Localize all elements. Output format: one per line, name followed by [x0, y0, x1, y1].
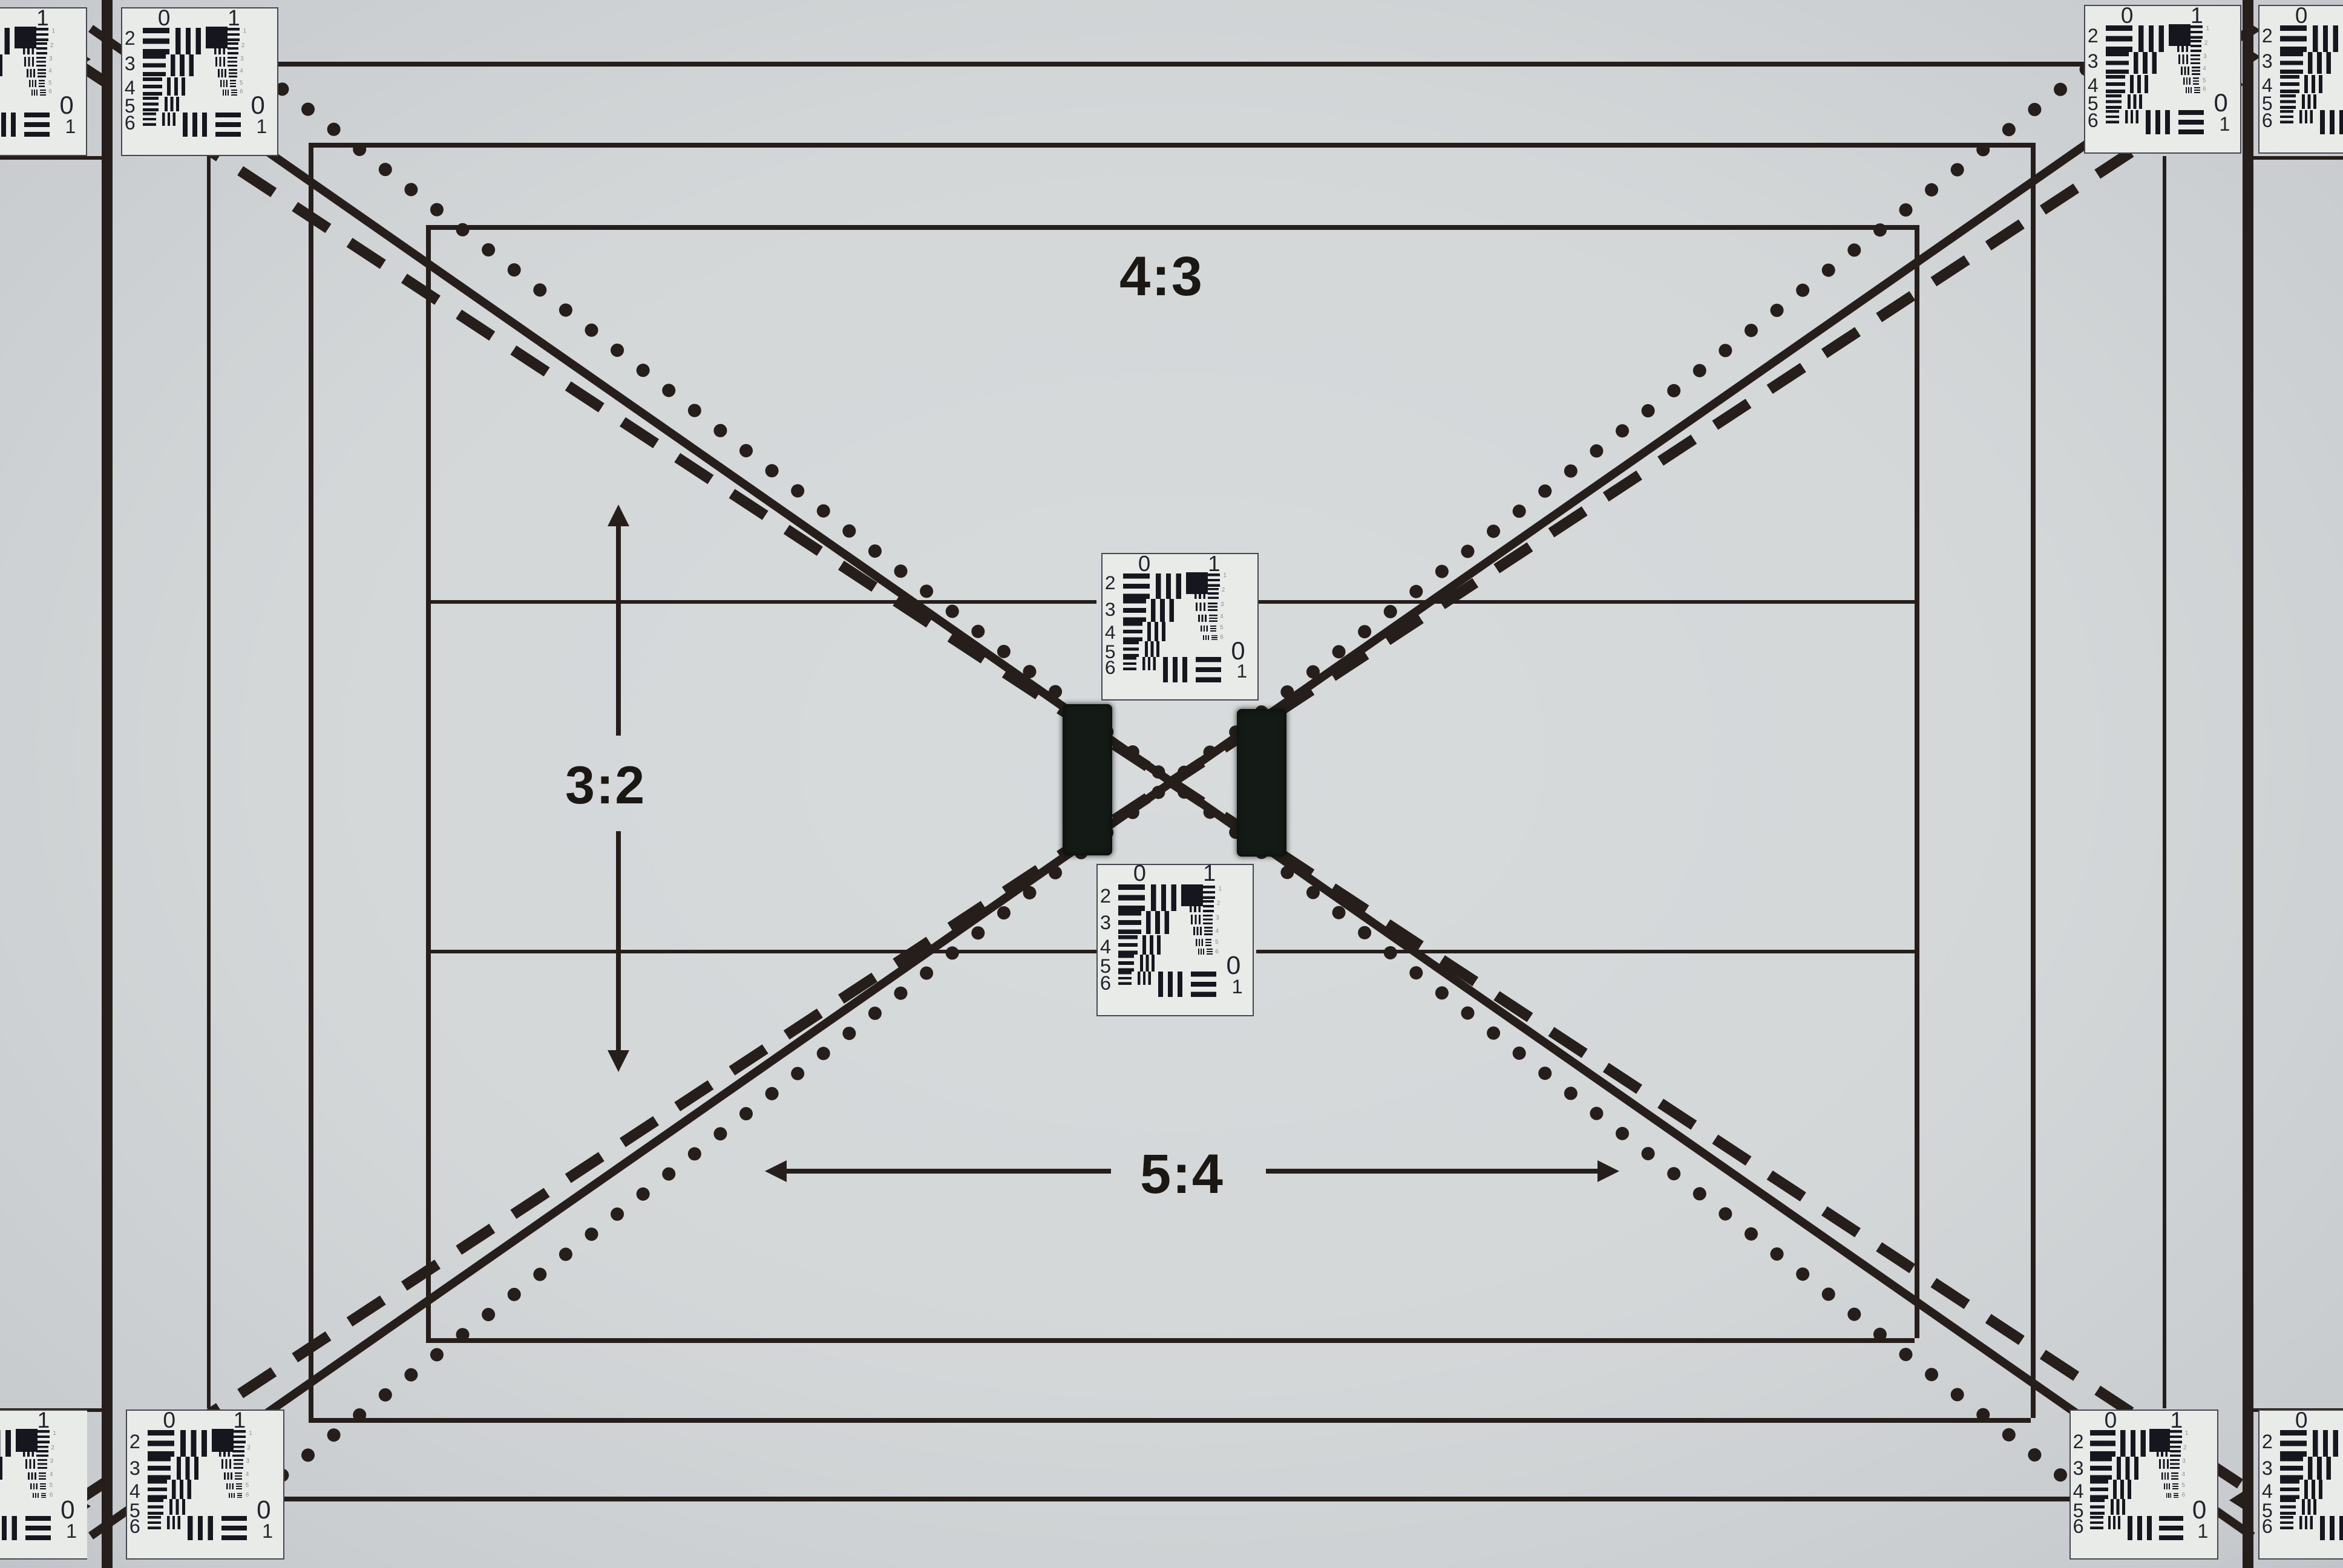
hbar-pattern [221, 1515, 246, 1540]
diagonal-dot [1432, 983, 1451, 1002]
frame-inner-left [426, 225, 430, 1338]
diagonal-dot [1896, 1345, 1915, 1364]
diagonal-dot [660, 381, 678, 399]
group-1-label: 1 [228, 7, 240, 30]
row-number: 3 [1100, 914, 1111, 934]
vbar-pattern [180, 1430, 207, 1457]
arrow-down-icon [608, 1050, 629, 1072]
aspect-label-3-2: 3:2 [565, 756, 646, 817]
usaf-target: 012345612345601 [2069, 1410, 2218, 1560]
frame-outer-bottom [140, 1497, 2204, 1501]
hbar-pattern [230, 80, 237, 87]
row-number: 6 [2088, 112, 2099, 131]
mini-index: 2 [1217, 902, 1221, 908]
vbar-pattern [31, 90, 37, 95]
hbar-pattern [227, 28, 240, 42]
usaf-target: 012345612345601 [1096, 864, 1254, 1016]
vbar-pattern [218, 69, 226, 77]
diagonal-dot [1742, 321, 1761, 339]
vbar-pattern [2127, 94, 2143, 109]
hbar-pattern [36, 28, 49, 42]
hbar-pattern [1119, 884, 1145, 912]
hbar-pattern [1203, 915, 1213, 924]
mini-index: 4 [2203, 68, 2206, 74]
vbar-pattern [221, 1460, 231, 1469]
hbar-pattern [2194, 87, 2200, 93]
diagonal-dot [479, 1305, 498, 1324]
mini-index: 2 [1222, 590, 1225, 596]
hbar-pattern [227, 43, 238, 54]
mini-index: 4 [50, 1474, 53, 1480]
row-number: 4 [125, 79, 136, 99]
diagonal-dot [1922, 180, 1941, 198]
diagonal-dot [711, 420, 730, 439]
diagonal-dot [814, 501, 833, 520]
corner-group-1: 1 [2219, 116, 2230, 136]
hbar-pattern [1208, 602, 1217, 612]
hbar-pattern [2191, 54, 2200, 64]
vbar-pattern [2177, 41, 2187, 51]
hbar-pattern [25, 113, 50, 137]
mini-index: 6 [246, 1494, 249, 1500]
vbar-pattern [172, 1480, 191, 1499]
vbar-pattern [229, 1492, 235, 1498]
vbar-pattern [1155, 573, 1182, 599]
usaf-target-box: 012345612345601 [121, 7, 278, 156]
hbar-pattern [1191, 972, 1216, 997]
mini-index: 1 [53, 1432, 56, 1438]
diagonal-dot [505, 1284, 523, 1303]
corner-group-0: 0 [1231, 640, 1245, 665]
diagonal-dot [2051, 79, 2070, 98]
hbar-pattern [228, 57, 237, 67]
frame-inner-right [1915, 225, 1919, 1338]
frame-mid-right [2031, 143, 2035, 1418]
vbar-pattern [2312, 25, 2339, 51]
hbar-pattern [216, 113, 241, 137]
hbar-pattern [1204, 927, 1212, 936]
corner-group-0: 0 [61, 1498, 74, 1523]
usaf-target-partial: 012345612345601 [0, 1410, 87, 1560]
vbar-pattern [175, 27, 202, 54]
diagonal-dot [1510, 501, 1529, 520]
vbar-pattern [1187, 885, 1200, 898]
usaf-target-box: 012345612345601 [2258, 1410, 2343, 1560]
diagonal-dot [2025, 1445, 2044, 1464]
vbar-pattern [2184, 78, 2191, 85]
diagonal-dot [1794, 280, 1812, 299]
corner-group-1: 1 [65, 119, 76, 138]
diagonal-dot [1768, 301, 1786, 319]
vbar-pattern [1142, 657, 1155, 670]
row-number: 2 [1105, 575, 1116, 595]
diagonal-dot [1665, 1164, 1683, 1183]
row-number: 4 [2088, 77, 2099, 96]
hbar-pattern [1207, 949, 1212, 955]
mini-index: 1 [1219, 887, 1222, 893]
hbar-pattern [2281, 1499, 2296, 1515]
group-0-label: 0 [2105, 1410, 2117, 1432]
diagonal-dot [943, 943, 962, 962]
diagonal-dot [1639, 1144, 1657, 1163]
usaf-target-partial: 012345612345601 [2258, 1410, 2343, 1560]
vbar-pattern [33, 1492, 39, 1498]
vbar-pattern [167, 77, 186, 96]
vbar-pattern [1147, 912, 1169, 935]
mini-index: 4 [246, 1474, 249, 1480]
diagonal-dot [1381, 943, 1400, 962]
row-number: 3 [129, 1459, 140, 1478]
diagonal-dot [737, 441, 756, 460]
hbar-pattern [143, 113, 157, 126]
corner-group-1: 1 [256, 119, 267, 138]
hbar-pattern [2193, 78, 2200, 85]
row-number: 4 [1105, 624, 1116, 644]
hbar-pattern [235, 1483, 242, 1490]
vbar-pattern [0, 54, 2, 76]
diagonal-dot [891, 983, 910, 1002]
vbar-pattern [1191, 915, 1201, 924]
hbar-pattern [1124, 657, 1137, 670]
hbar-pattern [1207, 573, 1221, 587]
hbar-pattern [1119, 912, 1141, 935]
row-number: 6 [1105, 659, 1116, 679]
usaf-target: 012345612345601 [2084, 5, 2241, 154]
diagonal-dot [1948, 160, 1967, 178]
diagonal-dot [376, 160, 395, 178]
group-1-label: 1 [2171, 1410, 2183, 1432]
velcro-tab-right [1237, 709, 1286, 857]
hbar-pattern [232, 1431, 246, 1444]
diagonal-dot [1794, 1264, 1812, 1283]
diagonal-dot [814, 1044, 833, 1062]
frame-mid-bottom [309, 1418, 2031, 1422]
vbar-pattern [2130, 75, 2149, 94]
arrow-up-icon [608, 505, 629, 526]
diagonal-dot [1510, 1044, 1529, 1062]
hbar-pattern [2159, 1515, 2183, 1540]
test-chart-canvas: 4:3 3:2 5:4 0123456123456010123456123456… [0, 0, 2343, 1568]
vbar-pattern [22, 43, 33, 54]
diagonal-dot [891, 561, 910, 580]
hbar-pattern [2106, 25, 2133, 51]
diagonal-dot [299, 99, 318, 118]
hbar-pattern [41, 1492, 47, 1498]
vbar-pattern [1196, 939, 1203, 946]
vbar-pattern [1201, 626, 1208, 632]
diagonal-dot [634, 361, 652, 379]
mini-index: 3 [240, 58, 243, 64]
horizontal-arrow-shaft-right [1266, 1169, 1600, 1174]
vbar-pattern [2309, 51, 2331, 74]
group-1-label: 1 [1203, 864, 1216, 886]
hbar-pattern [39, 1483, 46, 1490]
vbar-pattern [164, 96, 180, 112]
diagonal-dot [1561, 461, 1580, 480]
group-0-label: 0 [1138, 553, 1150, 575]
hbar-pattern [2091, 1515, 2103, 1529]
vbar-pattern [2159, 1460, 2168, 1469]
vbar-pattern [0, 27, 10, 54]
vbar-pattern [2155, 1431, 2168, 1444]
frame-mid-left [309, 143, 313, 1418]
diagonal-dot [866, 1004, 885, 1022]
hbar-pattern [1196, 657, 1221, 682]
corner-group-0: 0 [59, 95, 73, 120]
hbar-pattern [148, 1499, 164, 1515]
hbar-pattern [2169, 1431, 2182, 1444]
mini-index: 3 [246, 1461, 250, 1467]
vbar-pattern [20, 28, 33, 42]
usaf-target-box: 012345612345601 [1096, 864, 1254, 1016]
diagonal-dot [634, 1184, 652, 1203]
frame-outer-top [140, 62, 2204, 66]
hbar-pattern [1124, 599, 1146, 621]
hbar-pattern [2170, 1445, 2180, 1457]
usaf-target-box: 012345612345601 [126, 1410, 284, 1560]
vbar-pattern [27, 69, 35, 77]
vbar-pattern [1194, 588, 1205, 599]
hbar-pattern [1209, 615, 1217, 622]
hbar-pattern [1211, 635, 1217, 640]
vbar-pattern [2128, 1515, 2151, 1540]
mini-index: 6 [1215, 950, 1219, 956]
margin-line-top-right [2253, 156, 2343, 159]
group-1-label: 1 [1208, 553, 1220, 575]
group-1-label: 1 [37, 1410, 50, 1432]
vbar-pattern [167, 1515, 180, 1529]
usaf-target-box: 012345612345601 [2069, 1410, 2218, 1560]
vbar-pattern [23, 1445, 34, 1457]
row-number: 2 [1100, 887, 1111, 907]
hbar-pattern [143, 96, 159, 112]
hbar-pattern [2091, 1457, 2112, 1480]
mini-index: 6 [240, 91, 243, 97]
diagonal-dot [1613, 1123, 1632, 1142]
diagonal-dot [1819, 1284, 1838, 1303]
row-number: 3 [2088, 54, 2099, 73]
corner-group-1: 1 [2197, 1521, 2208, 1541]
hbar-pattern [38, 1472, 46, 1480]
mini-index: 1 [1224, 575, 1227, 581]
vbar-pattern [1163, 657, 1188, 682]
diagonal-dot [531, 1264, 549, 1283]
hbar-pattern [237, 1492, 243, 1498]
row-number: 3 [2262, 54, 2273, 73]
diagonal-dot [324, 119, 343, 138]
usaf-target-box: 012345612345601 [2258, 5, 2343, 154]
hbar-pattern [2091, 1430, 2115, 1457]
diagonal-dot [1665, 381, 1683, 399]
hbar-pattern [2281, 94, 2296, 109]
arrow-left-icon [765, 1160, 787, 1182]
diagonal-dot [505, 260, 523, 279]
hbar-pattern [2091, 1480, 2108, 1499]
vbar-pattern [1152, 599, 1174, 621]
diagonal-dot [428, 1345, 447, 1364]
group-1-label: 1 [233, 1410, 246, 1432]
diagonal-dot [1768, 1244, 1786, 1263]
diagonal-dot [556, 300, 575, 319]
usaf-target: 012345612345601 [126, 1410, 284, 1560]
hbar-pattern [1119, 955, 1135, 971]
group-0-label: 0 [2295, 1410, 2308, 1432]
row-number: 3 [125, 56, 136, 76]
diagonal-dot [762, 461, 781, 480]
diagonal-dot [1484, 521, 1503, 540]
diagonal-dot [402, 180, 421, 198]
corner-group-0: 0 [1226, 953, 1240, 979]
mini-index: 5 [50, 1485, 53, 1491]
hbar-pattern [148, 1457, 171, 1480]
diagonal-dot [1149, 782, 1168, 801]
vbar-pattern [162, 113, 175, 126]
vertical-arrow-shaft-upper [616, 523, 621, 736]
corner-group-1: 1 [1236, 663, 1247, 682]
hbar-pattern [1119, 972, 1132, 985]
vbar-pattern [2320, 110, 2343, 135]
row-number: 6 [2073, 1518, 2084, 1537]
vbar-pattern [2164, 1483, 2171, 1490]
horizontal-arrow-shaft-left [783, 1169, 1111, 1174]
vbar-pattern [169, 1499, 185, 1515]
row-number: 4 [2262, 1482, 2273, 1501]
mini-index: 2 [2204, 42, 2207, 48]
row-number: 4 [2262, 77, 2273, 96]
hbar-pattern [37, 1445, 48, 1457]
vbar-pattern [2309, 1457, 2331, 1480]
hbar-pattern [2281, 1515, 2294, 1529]
vbar-pattern [211, 28, 224, 42]
mini-index: 2 [2183, 1447, 2187, 1453]
diagonal-dot [866, 541, 885, 560]
hbar-pattern [36, 1431, 50, 1444]
diagonal-dot [608, 1204, 627, 1223]
vbar-pattern [2174, 26, 2187, 39]
margin-line-top-left [0, 156, 102, 159]
diagonal-dot [582, 1224, 601, 1243]
hbar-pattern [36, 43, 47, 54]
hbar-pattern [2281, 1430, 2307, 1457]
vbar-pattern [2117, 1457, 2138, 1480]
diagonal-dot [1716, 341, 1735, 359]
hbar-pattern [1202, 900, 1213, 912]
vbar-pattern [28, 1472, 36, 1480]
hbar-pattern [2281, 1480, 2299, 1499]
velcro-tab-left [1063, 704, 1112, 855]
vbar-pattern [30, 80, 36, 87]
vbar-pattern [0, 1457, 3, 1480]
vbar-pattern [1203, 635, 1208, 640]
mini-index: 3 [1221, 604, 1224, 610]
diagonal-dot [762, 1083, 781, 1102]
hbar-pattern [148, 1430, 175, 1457]
corner-group-1: 1 [66, 1521, 77, 1541]
mini-index: 3 [49, 58, 52, 64]
vbar-pattern [2312, 1430, 2339, 1457]
mini-index: 5 [2181, 1485, 2185, 1491]
diagonal-dot [685, 400, 704, 419]
mini-index: 6 [2203, 89, 2206, 95]
hbar-pattern [234, 1460, 243, 1469]
hbar-pattern [1210, 626, 1217, 632]
diagonal-dot [788, 481, 807, 500]
row-number: 4 [2073, 1482, 2084, 1501]
mini-index: 2 [51, 1447, 54, 1453]
mini-index: 2 [241, 44, 244, 50]
hbar-pattern [2281, 1457, 2303, 1480]
vbar-pattern [1189, 900, 1200, 912]
diagonal-dot [453, 220, 472, 238]
vbar-pattern [2120, 1430, 2145, 1457]
diagonal-dot [737, 1104, 756, 1123]
hbar-pattern [2281, 110, 2294, 123]
diagonal-dot [1742, 1224, 1761, 1243]
mini-index: 1 [52, 30, 55, 36]
hbar-pattern [2190, 26, 2203, 39]
vbar-pattern [0, 1430, 11, 1457]
vbar-pattern [1137, 972, 1150, 985]
vbar-pattern [25, 1460, 35, 1469]
vbar-pattern [25, 57, 34, 67]
aspect-label-5-4: 5:4 [1140, 1141, 1224, 1206]
diagonal-dot [1999, 1425, 2018, 1443]
vbar-pattern [2157, 1445, 2168, 1457]
group-0-label: 0 [163, 1410, 175, 1432]
vbar-pattern [219, 1445, 231, 1457]
hbar-pattern [2281, 51, 2303, 74]
row-number: 6 [125, 114, 136, 134]
diagonal-dot [376, 1385, 395, 1403]
hbar-pattern [148, 1515, 162, 1529]
diagonal-dot [1948, 1385, 1967, 1403]
diagonal-dot [1845, 1304, 1864, 1323]
vbar-pattern [2161, 1472, 2169, 1480]
vbar-pattern [221, 80, 228, 87]
row-number: 2 [2088, 27, 2099, 47]
hbar-pattern [1202, 885, 1216, 898]
diagonal-dot [1716, 1204, 1735, 1223]
vbar-pattern [2301, 94, 2317, 109]
arrow-right-icon [1597, 1160, 1619, 1182]
mini-index: 5 [246, 1485, 249, 1491]
mini-index: 2 [50, 44, 53, 50]
diagonal-dot [1613, 421, 1632, 440]
diagonal-dot [1690, 1184, 1709, 1203]
diagonal-dot [1175, 762, 1194, 781]
row-number: 6 [2262, 1518, 2273, 1537]
hbar-pattern [2171, 1460, 2180, 1469]
diagonal-dot [1639, 401, 1657, 420]
vbar-pattern [2299, 1515, 2312, 1529]
mini-index: 1 [2185, 1432, 2189, 1438]
row-number: 3 [2262, 1459, 2273, 1478]
hbar-pattern [2179, 110, 2204, 135]
hbar-pattern [143, 77, 162, 96]
hbar-pattern [1119, 936, 1138, 955]
mini-index: 6 [1220, 636, 1223, 642]
row-number: 6 [1100, 974, 1111, 994]
vbar-pattern [2113, 1480, 2131, 1499]
diagonal-dot [1381, 602, 1400, 621]
diagonal-dot [1870, 220, 1889, 239]
frame-mid-top [309, 143, 2031, 147]
vbar-pattern [183, 113, 208, 137]
diagonal-dot [1407, 963, 1426, 982]
vbar-pattern [2110, 1499, 2125, 1515]
diagonal-dot [402, 1365, 421, 1383]
vbar-pattern [223, 90, 228, 95]
